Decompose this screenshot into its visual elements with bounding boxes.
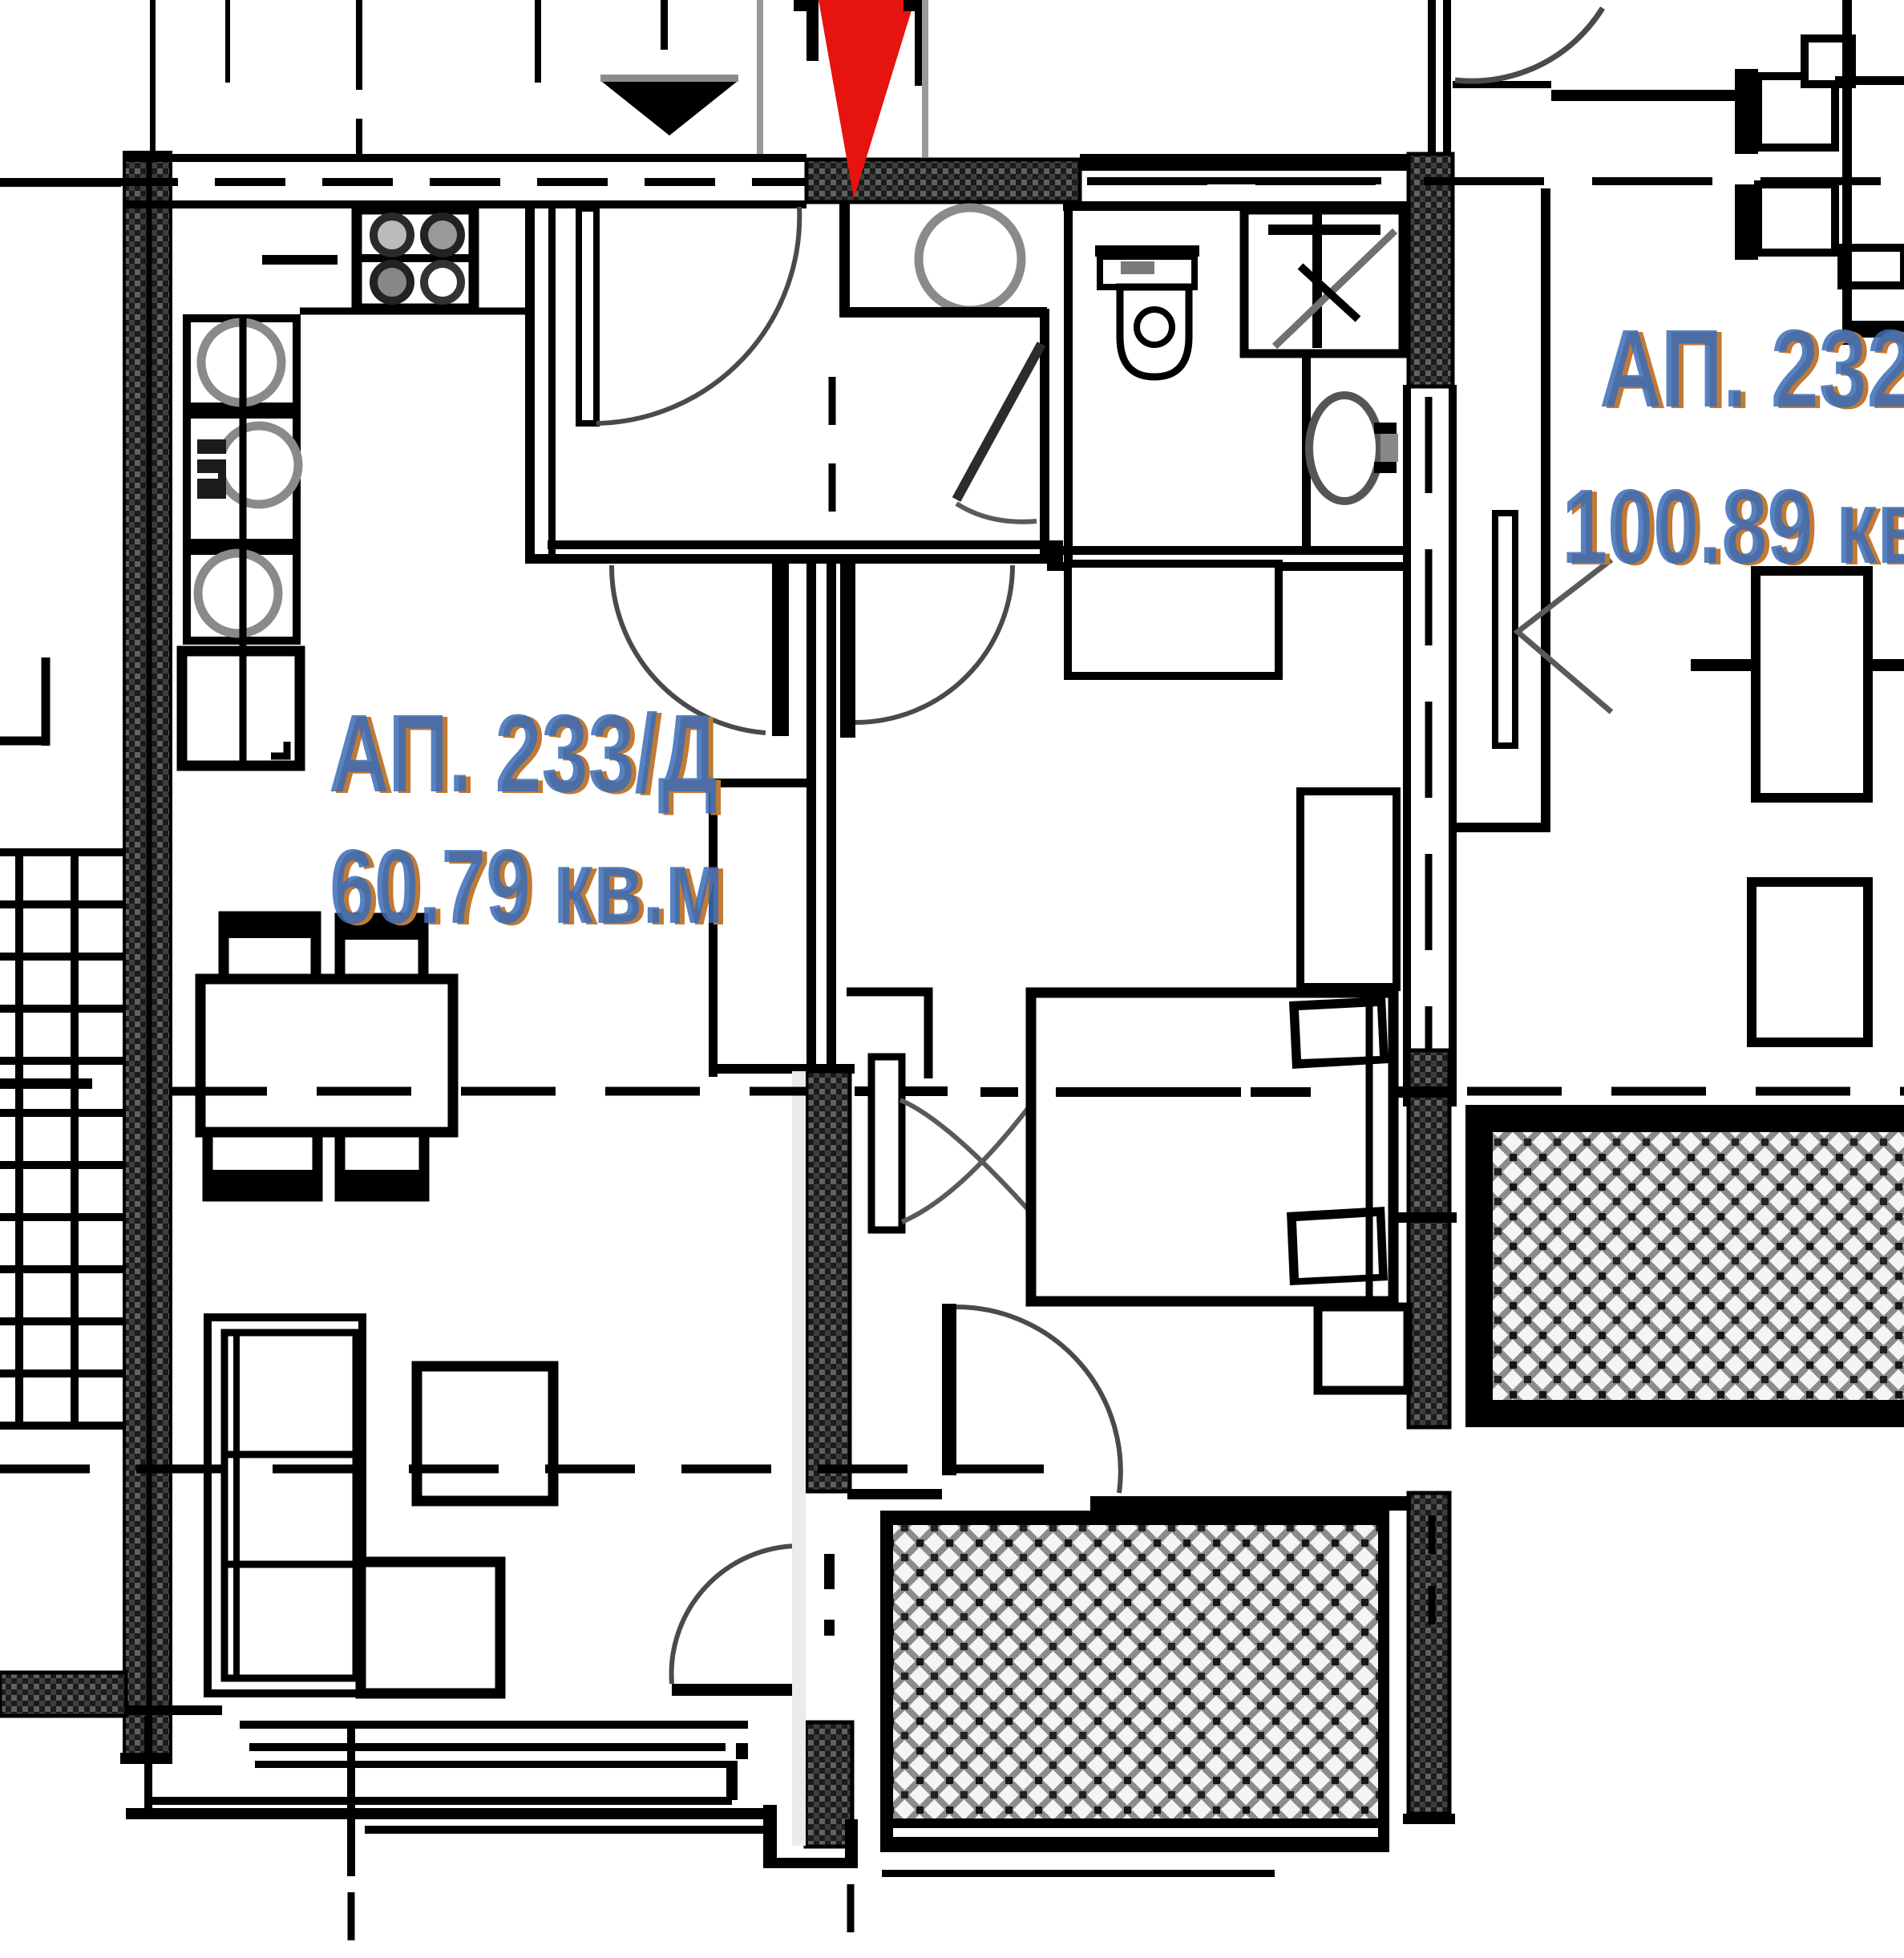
svg-text:100.89 кв.м: 100.89 кв.м	[1562, 467, 1904, 585]
svg-text:60.79 кв.м: 60.79 кв.м	[329, 827, 724, 945]
svg-text:АП. 232/Д: АП. 232/Д	[1599, 307, 1904, 431]
svg-text:АП. 233/Д: АП. 233/Д	[329, 692, 718, 815]
